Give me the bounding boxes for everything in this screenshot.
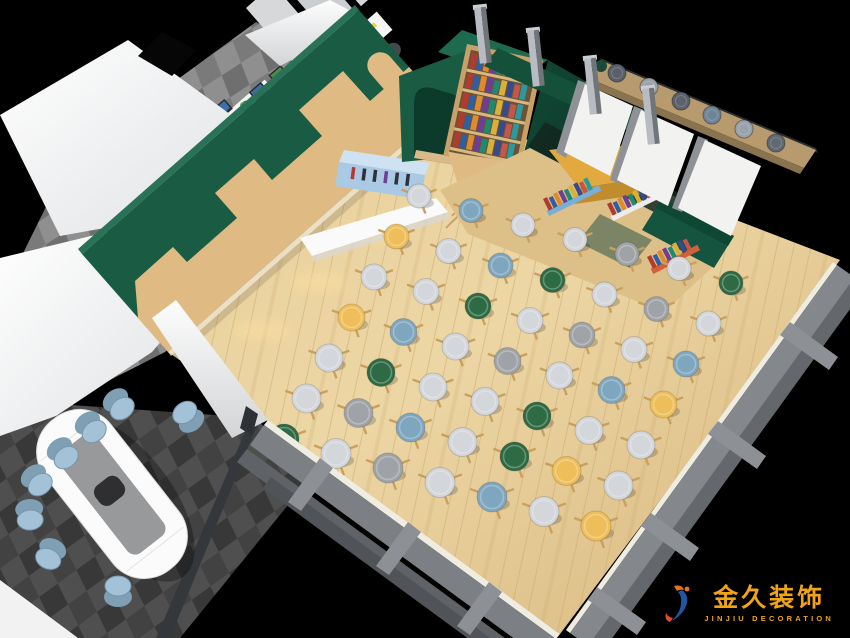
render-3d-interior [0,0,850,638]
stool-seat [373,453,403,483]
bar-stool [735,120,753,138]
stool-seat [396,413,425,442]
stool-seat [500,442,529,471]
conference-chair [14,498,45,531]
stool-seat [604,471,633,500]
logo: 金久装饰 JINJIU DECORATION [660,582,834,626]
conference-chair [104,576,132,607]
stool-seat [292,384,321,413]
bar-stool [672,92,690,110]
interior-rendering-image: 金久装饰 JINJIU DECORATION [0,0,850,638]
bar-stool [608,64,626,82]
chair-seat [105,576,131,596]
logo-text-cn: 金久装饰 [713,585,825,611]
stool-seat [344,399,373,428]
logo-icon [660,582,696,626]
bar-stool [703,106,721,124]
stool-seat [552,457,581,486]
stool-seat [477,482,507,512]
stool-seat [448,428,477,457]
logo-text-en: JINJIU DECORATION [704,614,834,623]
stool-seat [425,468,455,498]
bar-stool [767,134,785,152]
stool-seat [529,497,559,527]
stool-seat [581,511,611,541]
